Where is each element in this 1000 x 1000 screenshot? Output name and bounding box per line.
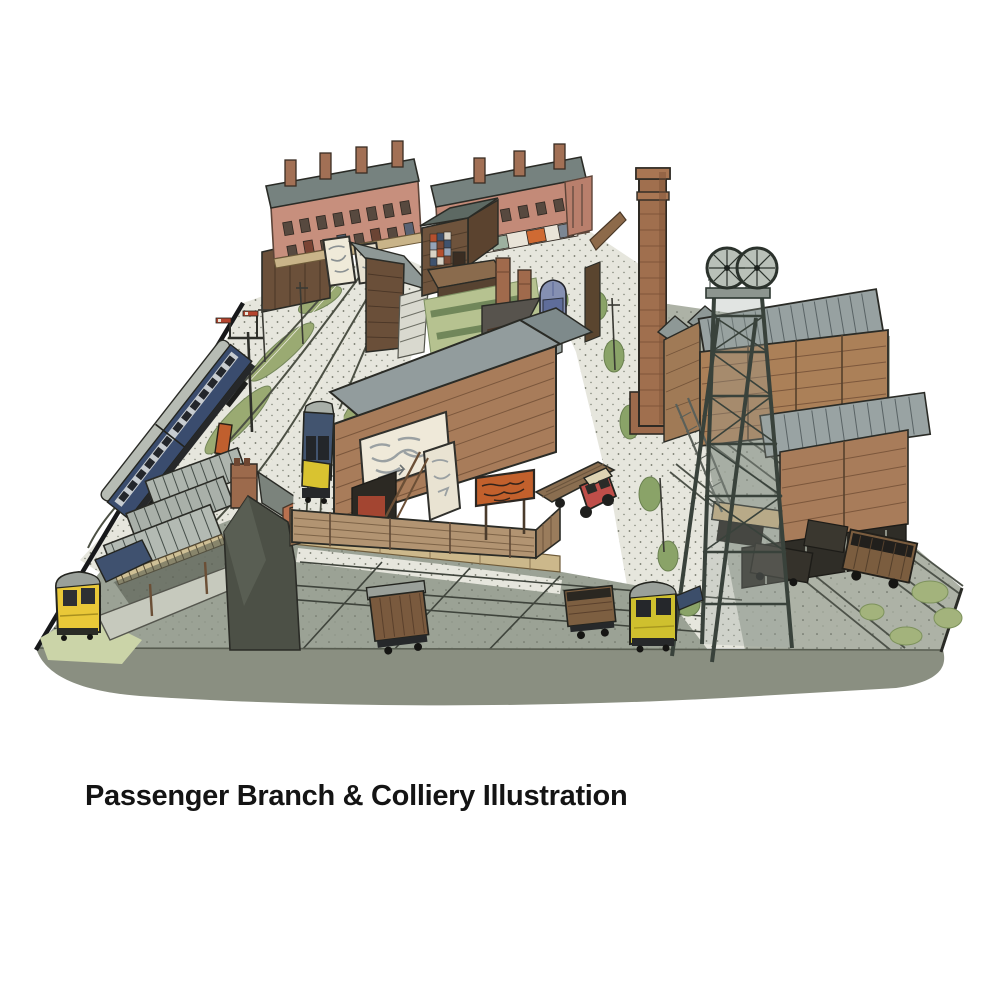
illustration: [0, 0, 1000, 760]
winding-wheels: [707, 248, 777, 288]
page: { "caption": { "text": "Passenger Branch…: [0, 0, 1000, 1000]
caption: Passenger Branch & Colliery Illustration: [85, 780, 945, 813]
red-machine: [358, 496, 385, 518]
red-lorry: [536, 462, 616, 518]
leaning-poster: [424, 442, 460, 520]
headframe-platform: [706, 288, 770, 298]
bay-end: [565, 176, 592, 236]
patchwork-window: [430, 232, 451, 266]
foreground-apron: [36, 648, 944, 705]
